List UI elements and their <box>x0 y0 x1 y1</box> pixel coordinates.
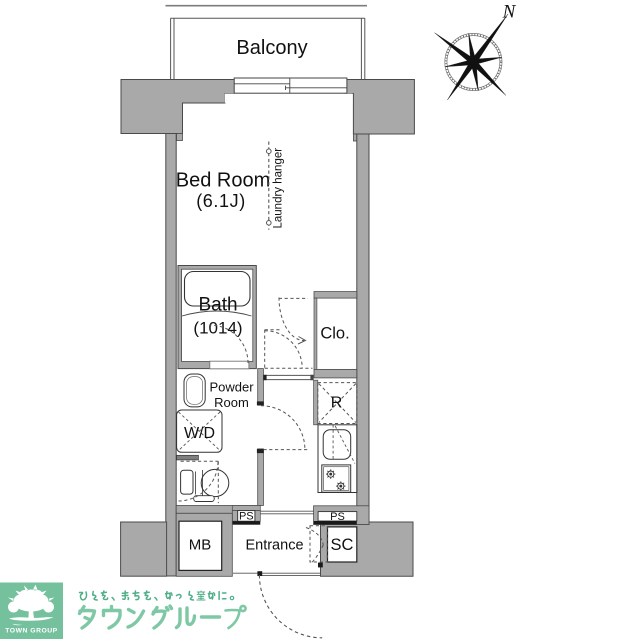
svg-text:W/D: W/D <box>184 425 215 442</box>
svg-text:Laundry hanger: Laundry hanger <box>273 148 285 229</box>
svg-text:Bed Room: Bed Room <box>176 170 271 192</box>
svg-text:N: N <box>502 2 517 23</box>
svg-text:SC: SC <box>331 536 354 554</box>
svg-text:Entrance: Entrance <box>245 538 303 554</box>
svg-text:Powder: Powder <box>209 380 254 395</box>
svg-text:MB: MB <box>189 537 212 554</box>
svg-text:R: R <box>331 395 343 412</box>
svg-text:Room: Room <box>214 395 249 410</box>
svg-text:Bath: Bath <box>198 295 237 316</box>
svg-text:Clo.: Clo. <box>320 325 349 343</box>
svg-text:TOWN GROUP: TOWN GROUP <box>5 628 57 635</box>
svg-text:PS: PS <box>239 511 254 523</box>
svg-text:(6.1J): (6.1J) <box>196 191 246 211</box>
svg-text:Balcony: Balcony <box>236 37 307 59</box>
